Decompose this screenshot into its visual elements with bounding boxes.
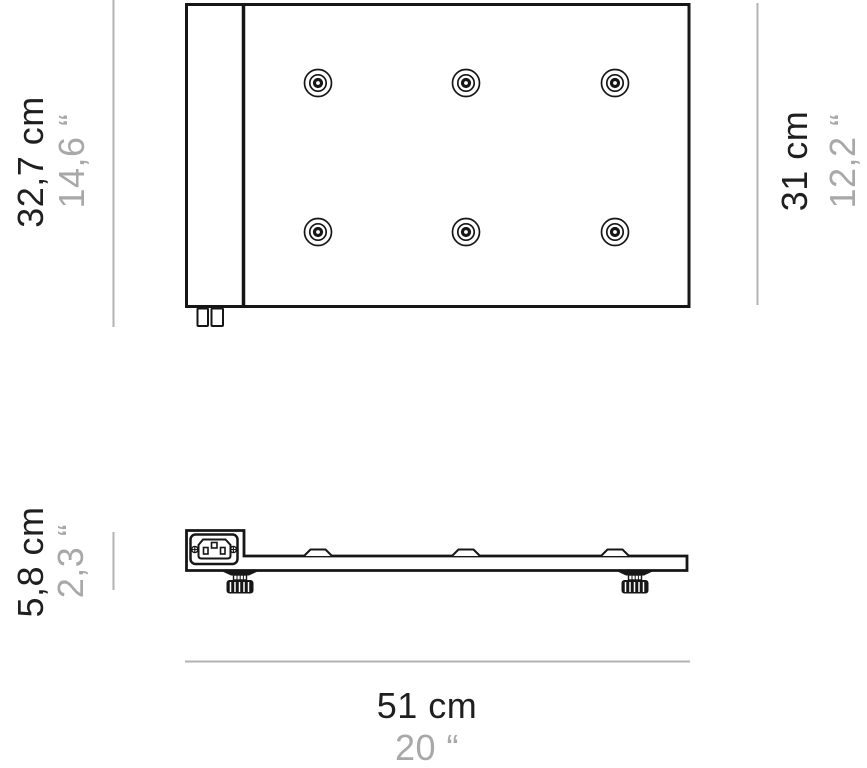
label-height-in: 2,3 “ (50, 524, 91, 599)
label-height-cm: 5,8 cm (10, 506, 51, 617)
label-depth-panel-in: 12,2 “ (822, 113, 863, 208)
label-depth-total-in: 14,6 “ (51, 113, 92, 208)
mount-point (453, 219, 480, 246)
top-view-outline (187, 5, 690, 307)
screw-right (230, 546, 236, 552)
label-width-in: 20 “ (395, 727, 459, 768)
mount-point (602, 219, 629, 246)
label-depth-panel-cm: 31 cm (774, 111, 815, 212)
adjustable-foot (223, 572, 258, 594)
side-view (187, 531, 688, 594)
top-view (187, 3, 690, 326)
adjustable-foot (618, 572, 653, 594)
label-depth-total-cm: 32,7 cm (10, 96, 51, 228)
mount-point (453, 70, 480, 97)
dimension-drawing: 32,7 cm 14,6 “ 31 cm 12,2 “ 5,8 cm 2,3 “… (0, 0, 867, 768)
label-width-cm: 51 cm (377, 685, 478, 726)
mount-point (305, 70, 332, 97)
mount-bump (304, 550, 332, 557)
mount-point (305, 219, 332, 246)
mount-bump (452, 550, 480, 557)
screw-left (192, 546, 198, 552)
rear-connector (198, 309, 224, 327)
mount-bump (601, 550, 629, 557)
mount-point (602, 70, 629, 97)
